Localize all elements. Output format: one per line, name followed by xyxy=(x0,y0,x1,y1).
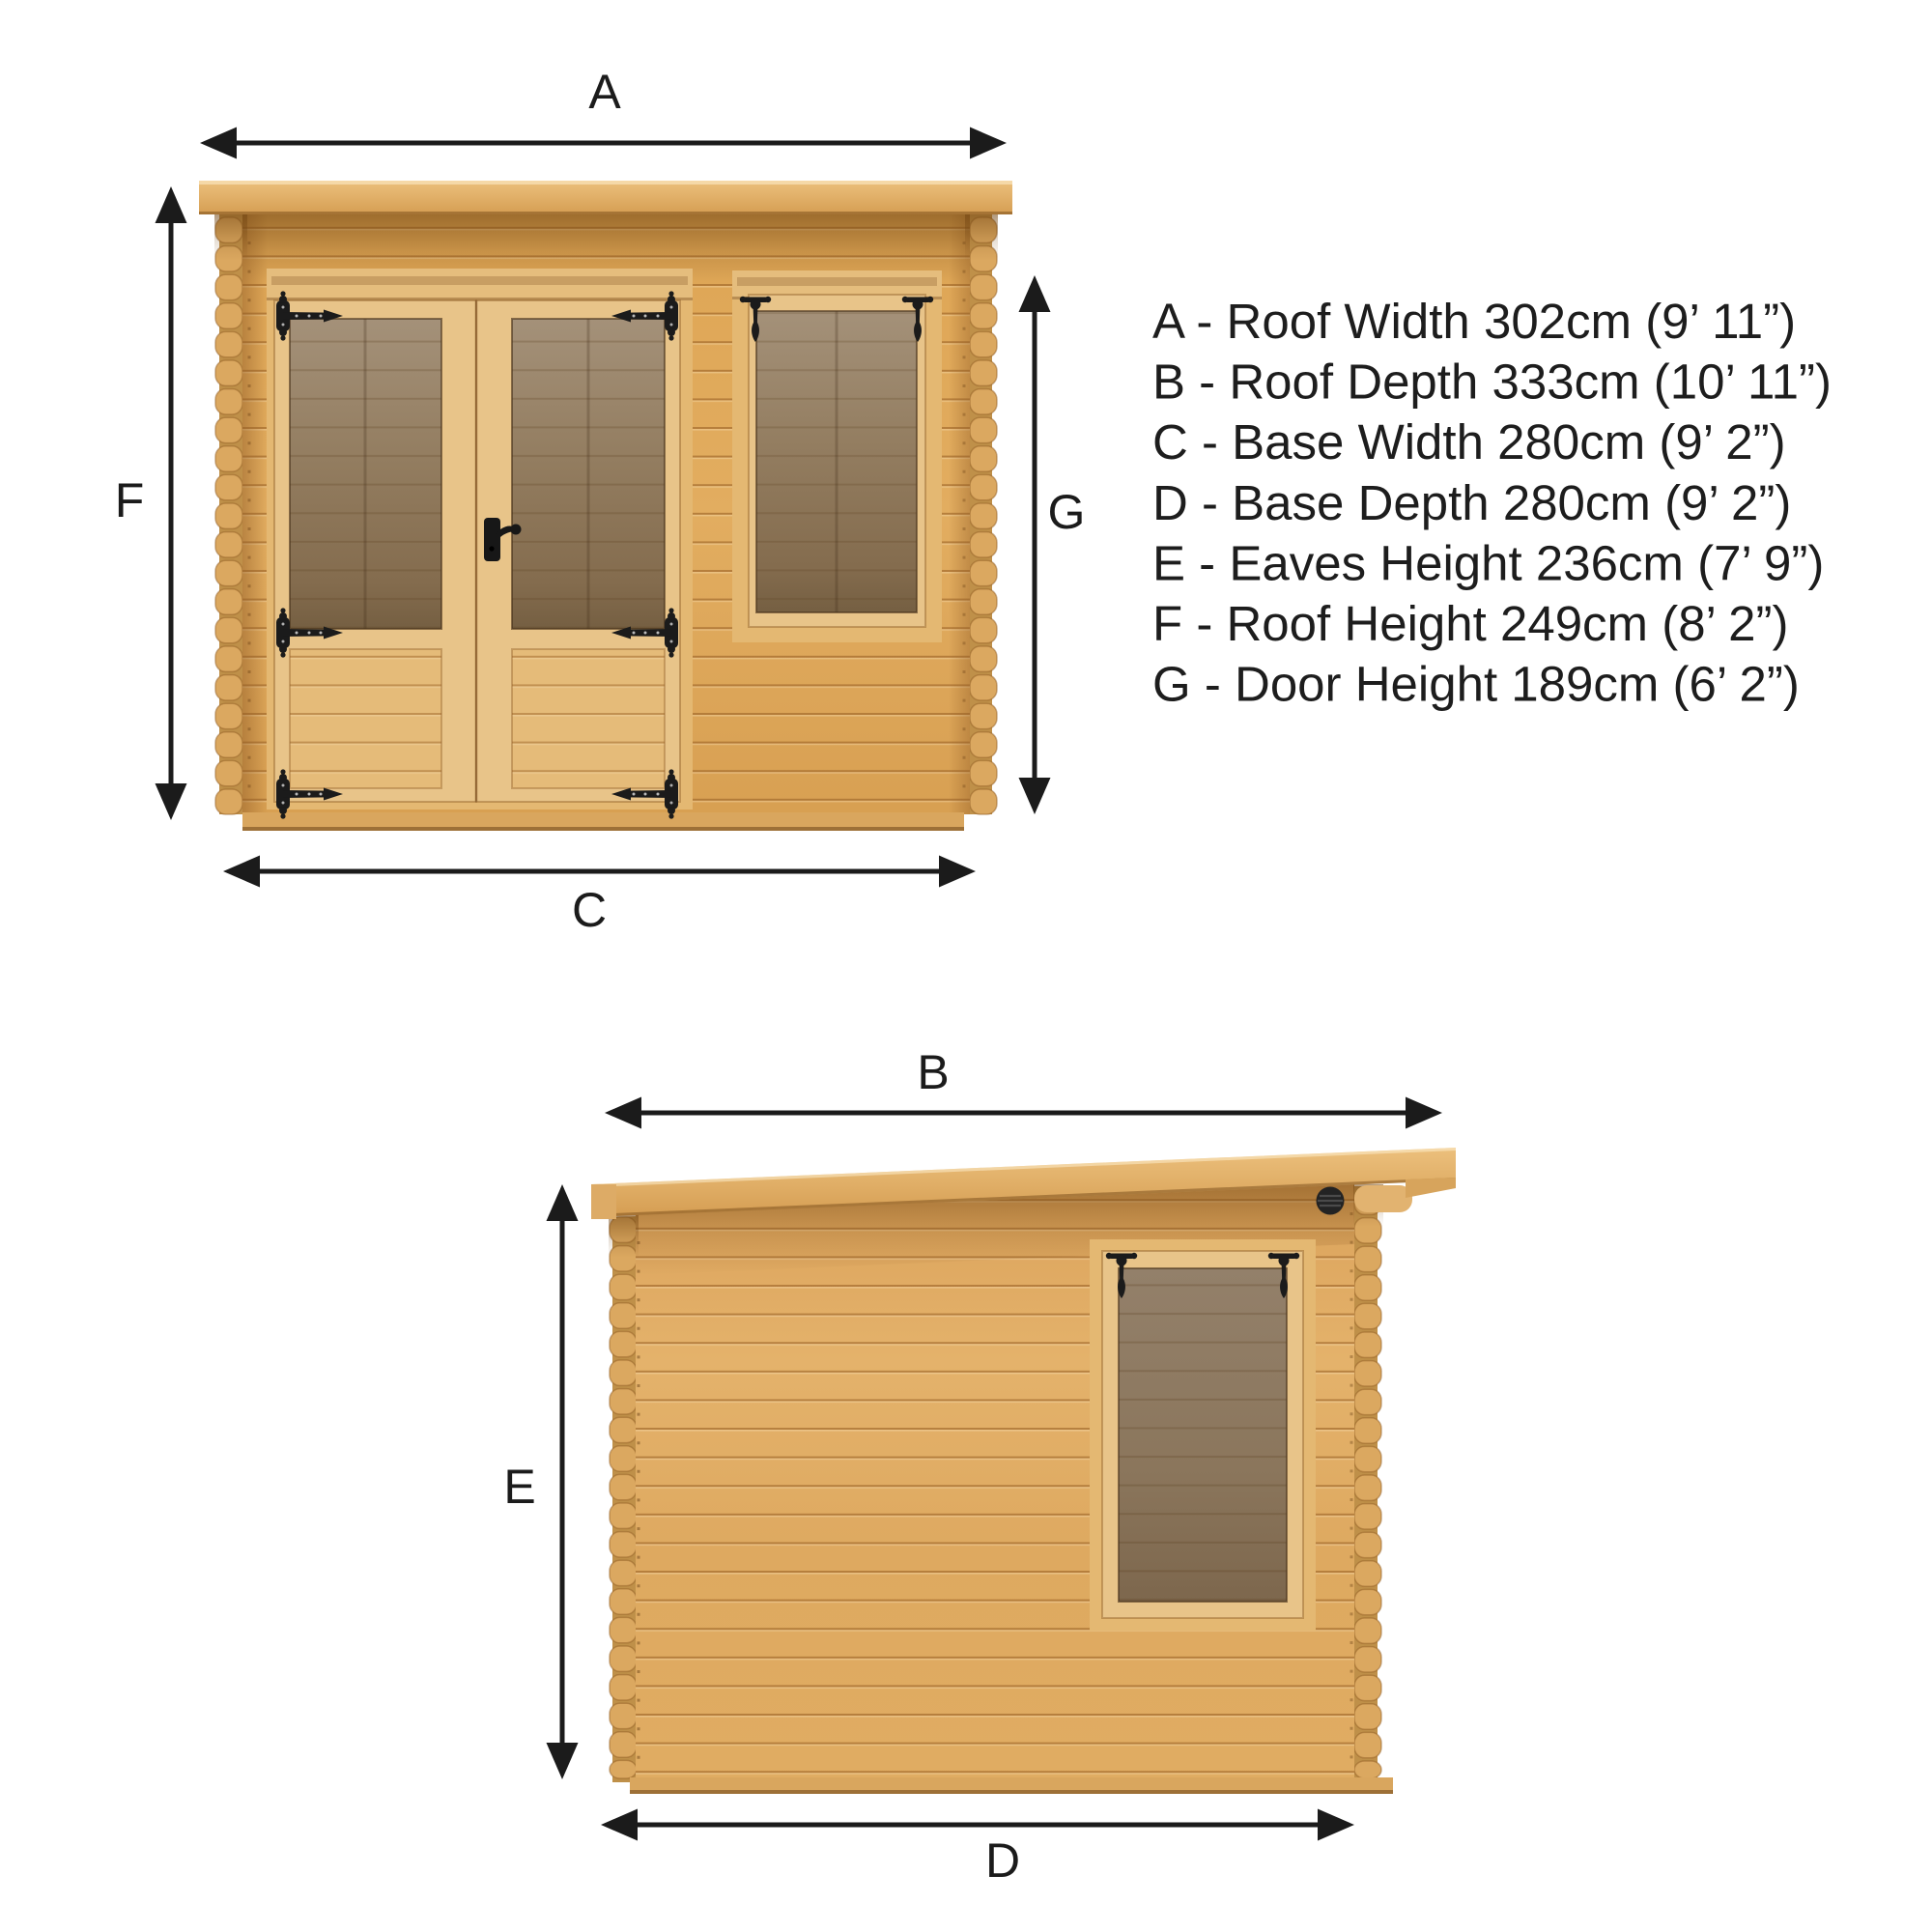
svg-text:C: C xyxy=(572,883,607,937)
svg-text:C - Base Width 280cm (9’ 2”): C - Base Width 280cm (9’ 2”) xyxy=(1152,414,1786,469)
svg-text:F: F xyxy=(115,473,145,527)
svg-text:A: A xyxy=(588,65,621,119)
svg-text:D - Base Depth 280cm (9’ 2”): D - Base Depth 280cm (9’ 2”) xyxy=(1152,475,1791,530)
svg-text:G - Door Height 189cm (6’ 2”): G - Door Height 189cm (6’ 2”) xyxy=(1152,657,1800,712)
svg-text:B - Roof Depth 333cm (10’ 11”): B - Roof Depth 333cm (10’ 11”) xyxy=(1152,355,1832,410)
svg-text:E: E xyxy=(503,1460,535,1514)
svg-text:G: G xyxy=(1048,485,1086,539)
svg-text:F - Roof Height 249cm (8’ 2”): F - Roof Height 249cm (8’ 2”) xyxy=(1152,596,1789,651)
svg-text:A - Roof Width 302cm (9’ 11”): A - Roof Width 302cm (9’ 11”) xyxy=(1152,294,1796,349)
svg-text:B: B xyxy=(917,1045,949,1099)
svg-text:D: D xyxy=(985,1833,1020,1888)
svg-text:E - Eaves Height 236cm (7’ 9”): E - Eaves Height 236cm (7’ 9”) xyxy=(1152,535,1824,590)
